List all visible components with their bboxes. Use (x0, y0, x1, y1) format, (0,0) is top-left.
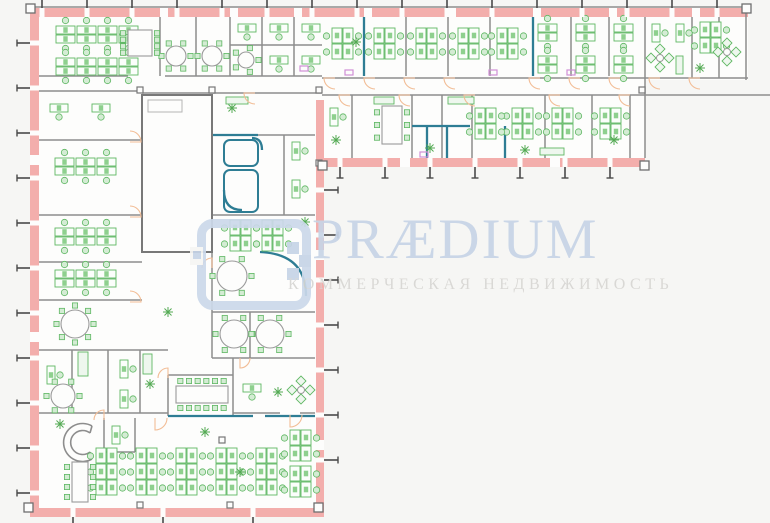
floorplan-screenshot: PRÆDIUM КОММЕРЧЕСКАЯ НЕДВИЖИМОСТЬ (0, 0, 770, 523)
floor-plan-canvas (0, 0, 770, 523)
